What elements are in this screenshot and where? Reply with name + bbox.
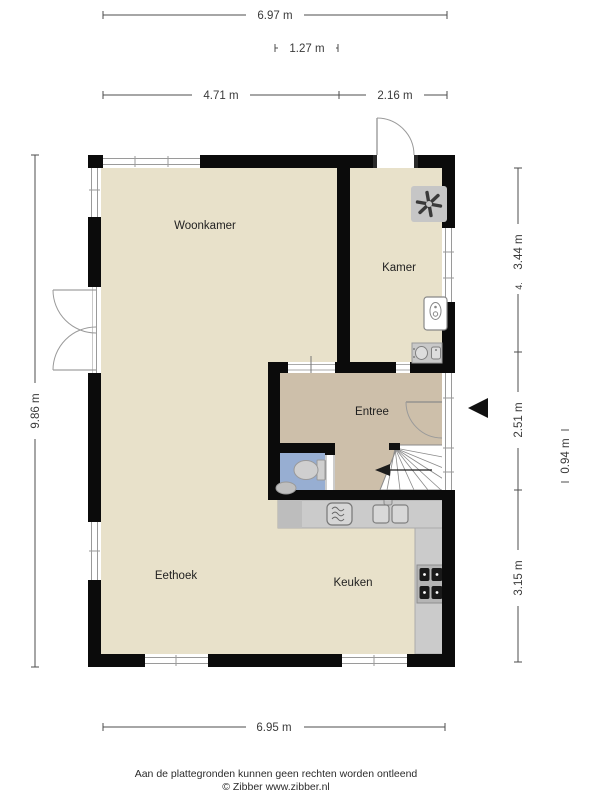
opening-kamer-entree	[396, 362, 410, 373]
dim-right-entree: 2.51 m	[513, 402, 525, 437]
boiler-icon	[424, 297, 447, 330]
corner-basin-icon	[276, 482, 296, 494]
window-left-top	[88, 168, 101, 217]
wall-entree-left	[268, 362, 280, 500]
room-label-kamer: Kamer	[382, 262, 416, 274]
dim-right-kamer: 3.44 m	[513, 234, 525, 269]
window-left-bottom	[88, 522, 101, 580]
room-label-keuken: Keuken	[333, 577, 372, 589]
dim-top-inner: 1.27 m	[289, 43, 324, 55]
dim-left-total: 9.86 m	[30, 393, 42, 428]
washbasin-counter-icon	[412, 343, 442, 363]
dim-right-door: 0.94 m	[560, 438, 572, 473]
footer: Aan de plattegronden kunnen geen rechten…	[0, 768, 552, 793]
door-toilet	[325, 455, 335, 490]
window-top	[103, 155, 200, 168]
wall-entree-keuken	[268, 490, 455, 500]
window-bottom-right	[342, 654, 407, 667]
dim-top-right: 2.16 m	[377, 90, 412, 102]
dim-top-left: 4.71 m	[203, 90, 238, 102]
window-right-kamer	[442, 228, 455, 302]
footer-disclaimer: Aan de plattegronden kunnen geen rechten…	[0, 768, 552, 781]
window-bottom-left	[145, 654, 208, 667]
room-label-woonkamer: Woonkamer	[174, 220, 236, 232]
counter-corner	[278, 500, 302, 528]
oven-icon	[327, 503, 352, 525]
wall-toilet-top	[268, 443, 335, 453]
dim-bottom-total: 6.95 m	[256, 722, 291, 734]
dim-top-total: 6.97 m	[257, 10, 292, 22]
door-french-left	[53, 287, 101, 373]
floorplan-drawing: 6.97 m 1.27 m 4.71 m 2.16 m 9.86 m 3.44 …	[0, 0, 600, 800]
room-label-eethoek: Eethoek	[155, 570, 197, 582]
entrance-arrow-icon	[468, 398, 488, 418]
dim-right-kamer-extra: 4.	[514, 282, 524, 290]
wall-woonkamer-kamer	[337, 168, 350, 373]
room-label-entree: Entree	[355, 406, 389, 418]
ventilation-unit-icon	[411, 186, 447, 222]
footer-copyright: © Zibber www.zibber.nl	[0, 781, 552, 794]
door-kamer-exterior	[373, 118, 418, 168]
dim-right-keuken: 3.15 m	[513, 560, 525, 595]
stairs-newel	[389, 443, 400, 450]
floorplan-page: 6.97 m 1.27 m 4.71 m 2.16 m 9.86 m 3.44 …	[0, 0, 600, 800]
cooktop-icon	[417, 565, 445, 603]
toilet-icon	[294, 460, 325, 480]
